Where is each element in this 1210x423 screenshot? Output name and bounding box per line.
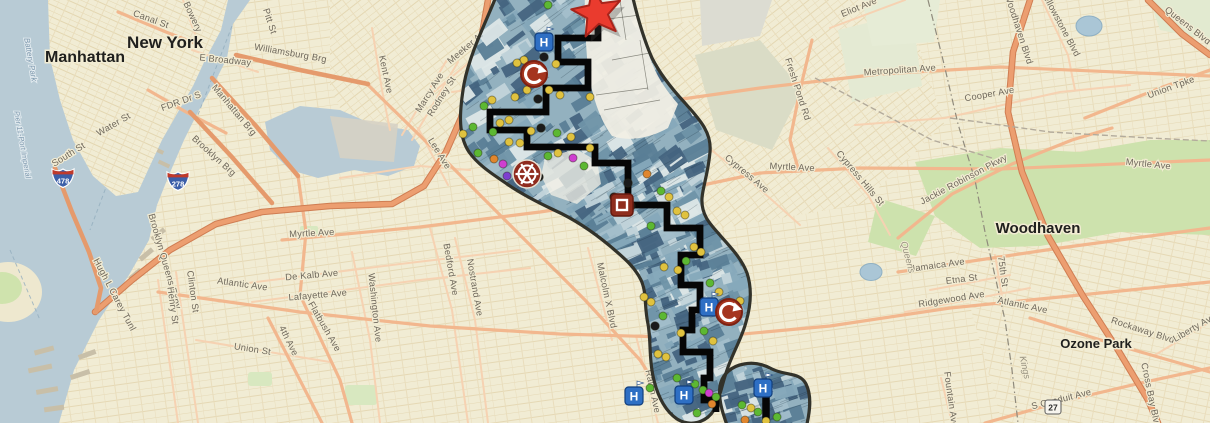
map-viewport[interactable]: Canal StBoweryPitt StE BroadwayWilliamsb… (0, 0, 1210, 423)
point-marker-green[interactable] (469, 123, 477, 131)
state-route-shield: 27 (1045, 400, 1061, 414)
point-marker-yellow[interactable] (677, 329, 685, 337)
point-marker-green[interactable] (489, 128, 497, 136)
svg-text:H: H (680, 388, 689, 402)
point-marker-green[interactable] (544, 1, 552, 9)
point-marker-yellow[interactable] (762, 417, 770, 423)
svg-text:H: H (705, 300, 714, 314)
point-marker-yellow[interactable] (567, 133, 575, 141)
facility-square-icon[interactable] (611, 194, 633, 216)
point-marker-yellow[interactable] (459, 130, 467, 138)
place-label: Woodhaven (996, 220, 1081, 237)
point-marker-yellow[interactable] (554, 149, 562, 157)
point-marker-green[interactable] (773, 413, 781, 421)
point-marker-yellow[interactable] (681, 211, 689, 219)
point-marker-black[interactable] (537, 124, 546, 133)
point-marker-green[interactable] (480, 102, 488, 110)
point-marker-orange[interactable] (708, 400, 716, 408)
point-marker-yellow[interactable] (496, 119, 504, 127)
transfer-icon[interactable] (716, 299, 742, 325)
point-marker-black[interactable] (624, 179, 633, 188)
point-marker-green[interactable] (553, 129, 561, 137)
place-label: Manhattan (45, 49, 125, 66)
point-marker-yellow[interactable] (647, 298, 655, 306)
place-label: Ozone Park (1060, 336, 1132, 351)
point-marker-yellow[interactable] (511, 93, 519, 101)
svg-text:27: 27 (1048, 403, 1058, 413)
point-marker-green[interactable] (673, 374, 681, 382)
point-marker-green[interactable] (544, 152, 552, 160)
point-marker-yellow[interactable] (488, 96, 496, 104)
point-marker-green[interactable] (474, 149, 482, 157)
svg-text:H: H (759, 381, 768, 395)
point-marker-black[interactable] (540, 53, 549, 62)
point-marker-green[interactable] (647, 222, 655, 230)
point-marker-yellow[interactable] (660, 263, 668, 271)
point-marker-orange[interactable] (741, 416, 749, 423)
map-canvas[interactable]: Canal StBoweryPitt StE BroadwayWilliamsb… (0, 0, 1210, 423)
point-marker-purple[interactable] (503, 172, 511, 180)
svg-text:H: H (540, 35, 549, 49)
point-marker-yellow[interactable] (674, 266, 682, 274)
point-marker-yellow[interactable] (662, 353, 670, 361)
point-marker-yellow[interactable] (556, 91, 564, 99)
point-marker-black[interactable] (651, 322, 660, 331)
transfer-icon[interactable] (521, 61, 547, 87)
point-marker-yellow[interactable] (697, 248, 705, 256)
point-marker-orange[interactable] (490, 155, 498, 163)
svg-text:H: H (630, 389, 639, 403)
point-marker-yellow[interactable] (673, 207, 681, 215)
point-marker-green[interactable] (646, 384, 654, 392)
point-marker-yellow[interactable] (513, 59, 521, 67)
point-marker-yellow[interactable] (690, 243, 698, 251)
svg-text:278: 278 (172, 180, 185, 189)
point-marker-yellow[interactable] (654, 350, 662, 358)
point-marker-magenta[interactable] (569, 154, 577, 162)
point-marker-magenta[interactable] (499, 160, 507, 168)
point-marker-black[interactable] (534, 95, 543, 104)
point-marker-green[interactable] (738, 401, 746, 409)
point-marker-green[interactable] (580, 162, 588, 170)
point-marker-green[interactable] (754, 408, 762, 416)
point-marker-green[interactable] (706, 279, 714, 287)
point-marker-yellow[interactable] (516, 139, 524, 147)
point-marker-yellow[interactable] (505, 116, 513, 124)
point-marker-orange[interactable] (643, 170, 651, 178)
point-marker-yellow[interactable] (665, 193, 673, 201)
svg-text:478: 478 (57, 177, 70, 186)
wheel-icon[interactable] (513, 160, 541, 188)
point-marker-green[interactable] (693, 409, 701, 417)
point-marker-yellow[interactable] (709, 337, 717, 345)
point-marker-green[interactable] (682, 257, 690, 265)
place-label: New York (127, 33, 203, 52)
point-marker-yellow[interactable] (640, 293, 648, 301)
point-marker-green[interactable] (659, 312, 667, 320)
point-marker-green[interactable] (700, 327, 708, 335)
point-marker-yellow[interactable] (586, 93, 594, 101)
point-marker-yellow[interactable] (586, 144, 594, 152)
point-marker-yellow[interactable] (527, 127, 535, 135)
point-marker-yellow[interactable] (505, 138, 513, 146)
point-marker-green[interactable] (657, 187, 665, 195)
point-marker-yellow[interactable] (552, 60, 560, 68)
point-marker-yellow[interactable] (545, 86, 553, 94)
